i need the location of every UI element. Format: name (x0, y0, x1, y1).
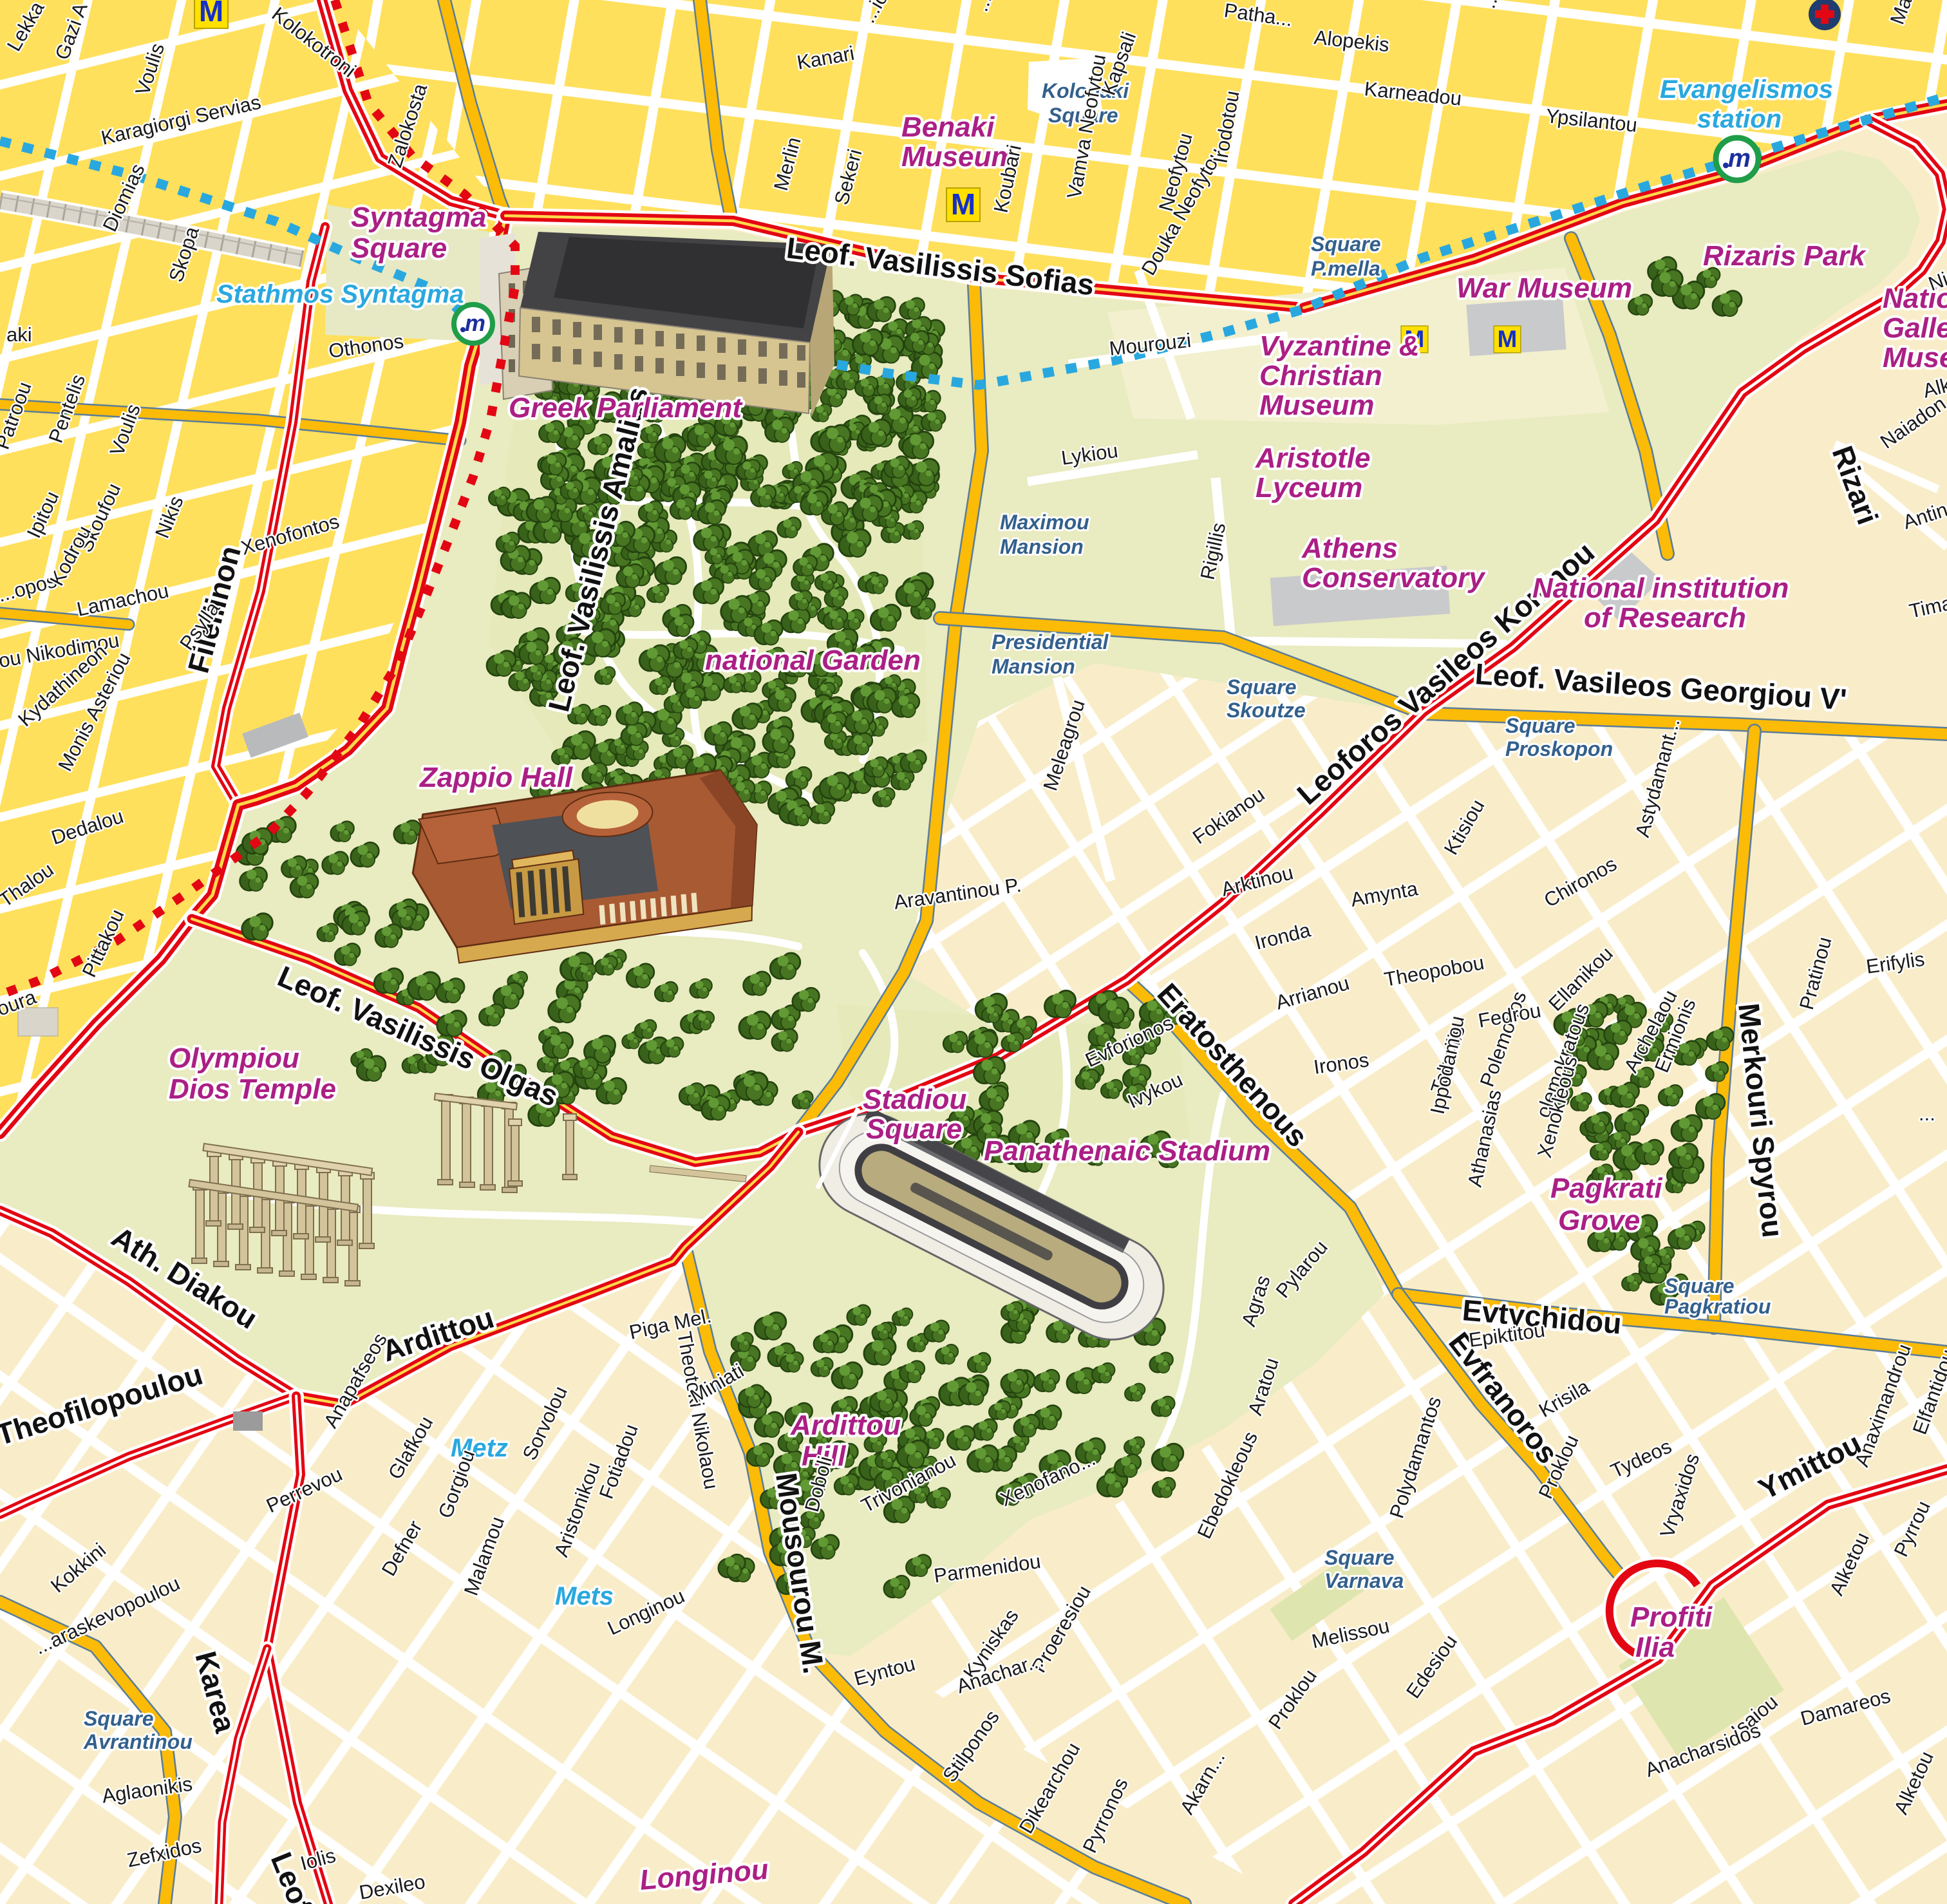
svg-text:Skoutze: Skoutze (1227, 699, 1306, 722)
svg-text:Dios Temple: Dios Temple (169, 1073, 336, 1105)
svg-text:Avrantinou: Avrantinou (83, 1730, 193, 1753)
svg-text:National institution: National institution (1532, 572, 1789, 604)
svg-text:Aristotle: Aristotle (1255, 442, 1370, 474)
svg-text:Square: Square (866, 1113, 962, 1145)
svg-text:Square: Square (351, 232, 447, 264)
svg-text:Mansion: Mansion (1000, 535, 1084, 558)
svg-text:Museum: Museum (1259, 390, 1374, 421)
svg-text:of Research: of Research (1584, 602, 1746, 634)
svg-text:...: ... (1919, 1102, 1935, 1125)
svg-text:Square: Square (1227, 675, 1296, 699)
svg-text:Panathenaic Stadium: Panathenaic Stadium (984, 1135, 1270, 1167)
svg-text:Presidential: Presidential (992, 630, 1109, 654)
svg-text:P.mella: P.mella (1311, 257, 1380, 280)
svg-text:Museum: Museum (1883, 342, 1947, 373)
svg-text:Profiti: Profiti (1630, 1601, 1713, 1633)
svg-text:Lyceum: Lyceum (1256, 472, 1362, 504)
svg-text:Varnava: Varnava (1324, 1569, 1404, 1592)
svg-text:Athens: Athens (1301, 533, 1398, 564)
svg-text:Mets: Mets (555, 1582, 614, 1610)
svg-text:Ilia: Ilia (1635, 1632, 1675, 1663)
svg-text:Conservatory: Conservatory (1302, 562, 1486, 594)
svg-text:War Museum: War Museum (1456, 272, 1632, 304)
svg-text:Square: Square (1664, 1274, 1734, 1297)
svg-text:Mansion: Mansion (992, 655, 1075, 678)
svg-text:Christian: Christian (1259, 360, 1382, 391)
svg-text:Evangelismos: Evangelismos (1660, 75, 1833, 104)
svg-text:Square: Square (84, 1707, 153, 1730)
svg-text:Square: Square (1311, 232, 1380, 256)
svg-text:Olympiou: Olympiou (169, 1042, 299, 1074)
svg-text:Zappio Hall: Zappio Hall (419, 762, 573, 793)
svg-text:Pagkrati: Pagkrati (1550, 1173, 1662, 1204)
svg-text:national Garden: national Garden (705, 645, 921, 676)
svg-text:aki: aki (6, 323, 32, 346)
svg-text:Maximou: Maximou (1000, 511, 1089, 534)
svg-text:Proskopon: Proskopon (1505, 737, 1613, 760)
svg-text:Benaki: Benaki (901, 111, 995, 143)
svg-text:Gallery: Gallery (1883, 312, 1947, 344)
svg-text:Syntagma: Syntagma (351, 202, 486, 233)
svg-text:Rizaris Park: Rizaris Park (1703, 240, 1867, 272)
svg-text:Pagkratiou: Pagkratiou (1664, 1295, 1771, 1318)
svg-text:Vyzantine &: Vyzantine & (1259, 330, 1420, 362)
svg-text:Grove: Grove (1558, 1205, 1640, 1236)
svg-text:Square: Square (1505, 714, 1575, 737)
svg-text:Ardittou: Ardittou (790, 1409, 901, 1441)
svg-text:station: station (1697, 105, 1782, 133)
svg-text:Greek Parliament: Greek Parliament (509, 392, 743, 424)
svg-text:Stathmos Syntagma: Stathmos Syntagma (216, 280, 464, 308)
svg-text:Square: Square (1324, 1546, 1394, 1569)
svg-text:Stadiou: Stadiou (863, 1084, 966, 1115)
